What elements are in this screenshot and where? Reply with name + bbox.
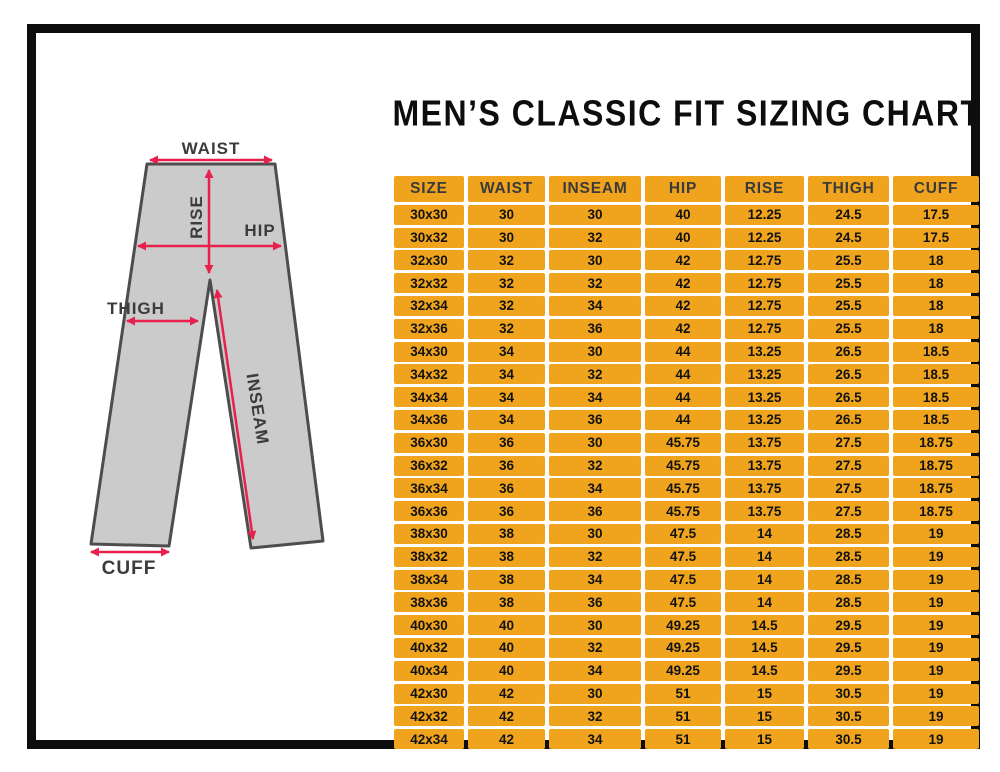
cell-waist: 36 [468,501,545,521]
cell-hip: 45.75 [645,456,721,476]
cell-size: 38x34 [394,570,464,590]
cell-rise: 13.75 [725,433,804,453]
waist-label: WAIST [182,139,241,158]
cell-size: 42x32 [394,706,464,726]
cell-size: 32x36 [394,319,464,339]
cell-size: 40x30 [394,615,464,635]
cell-rise: 15 [725,684,804,704]
cell-hip: 51 [645,729,721,749]
cell-cuff: 18.75 [893,478,979,498]
cell-cuff: 18 [893,250,979,270]
column-header-hip: HIP [645,176,721,202]
cell-rise: 12.75 [725,319,804,339]
cell-waist: 38 [468,547,545,567]
cell-hip: 44 [645,364,721,384]
cell-rise: 13.75 [725,501,804,521]
cell-thigh: 26.5 [808,342,889,362]
cell-thigh: 25.5 [808,273,889,293]
table-row: 34x30 34 30 44 13.25 26.5 18.5 [394,342,984,362]
pants-measurement-diagram: WAIST RISE HIP THIGH INSEAM CUFF [74,118,384,598]
cell-waist: 38 [468,524,545,544]
cell-rise: 12.75 [725,250,804,270]
cell-hip: 51 [645,684,721,704]
table-row: 38x34 38 34 47.5 14 28.5 19 [394,570,984,590]
cell-size: 38x32 [394,547,464,567]
cell-inseam: 36 [549,410,641,430]
cell-waist: 32 [468,273,545,293]
cell-hip: 42 [645,296,721,316]
cell-cuff: 19 [893,684,979,704]
column-header-size: SIZE [394,176,464,202]
cell-cuff: 19 [893,524,979,544]
cell-inseam: 34 [549,570,641,590]
cell-hip: 40 [645,228,721,248]
cell-waist: 34 [468,364,545,384]
poster-border-frame: MEN’S CLASSIC FIT SIZING CHART WAIST RIS… [27,24,980,749]
cell-thigh: 29.5 [808,615,889,635]
cell-hip: 42 [645,250,721,270]
cell-inseam: 34 [549,729,641,749]
cell-rise: 14 [725,570,804,590]
cell-thigh: 26.5 [808,364,889,384]
table-row: 38x32 38 32 47.5 14 28.5 19 [394,547,984,567]
cell-waist: 34 [468,342,545,362]
cell-waist: 36 [468,433,545,453]
cell-rise: 12.75 [725,296,804,316]
cell-hip: 44 [645,387,721,407]
cell-rise: 13.25 [725,364,804,384]
cell-size: 38x36 [394,592,464,612]
cell-thigh: 25.5 [808,296,889,316]
table-row: 34x32 34 32 44 13.25 26.5 18.5 [394,364,984,384]
cell-cuff: 18.75 [893,456,979,476]
cell-thigh: 27.5 [808,456,889,476]
cell-thigh: 24.5 [808,205,889,225]
cell-thigh: 30.5 [808,684,889,704]
cell-waist: 30 [468,205,545,225]
cell-rise: 15 [725,729,804,749]
table-row: 38x30 38 30 47.5 14 28.5 19 [394,524,984,544]
cell-cuff: 18 [893,273,979,293]
table-body: 30x30 30 30 40 12.25 24.5 17.5 30x32 30 … [394,205,984,752]
cell-waist: 42 [468,729,545,749]
cell-waist: 40 [468,638,545,658]
cell-thigh: 26.5 [808,387,889,407]
cell-inseam: 30 [549,205,641,225]
cell-cuff: 19 [893,592,979,612]
cell-size: 34x36 [394,410,464,430]
cell-cuff: 19 [893,729,979,749]
table-row: 32x32 32 32 42 12.75 25.5 18 [394,273,984,293]
cell-inseam: 32 [549,273,641,293]
cell-rise: 13.25 [725,387,804,407]
cell-hip: 45.75 [645,501,721,521]
cell-size: 34x30 [394,342,464,362]
table-row: 42x32 42 32 51 15 30.5 19 [394,706,984,726]
cell-inseam: 30 [549,342,641,362]
cell-size: 32x34 [394,296,464,316]
cell-cuff: 18.75 [893,433,979,453]
cell-inseam: 32 [549,456,641,476]
cell-cuff: 19 [893,706,979,726]
cell-size: 36x30 [394,433,464,453]
thigh-label: THIGH [107,299,165,318]
cell-rise: 13.75 [725,456,804,476]
pants-shape [91,164,323,548]
cell-cuff: 19 [893,638,979,658]
cell-thigh: 30.5 [808,706,889,726]
cell-rise: 12.75 [725,273,804,293]
cell-waist: 36 [468,478,545,498]
table-row: 36x30 36 30 45.75 13.75 27.5 18.75 [394,433,984,453]
cell-inseam: 36 [549,501,641,521]
cell-rise: 12.25 [725,228,804,248]
cell-thigh: 27.5 [808,501,889,521]
cell-cuff: 19 [893,661,979,681]
cell-waist: 34 [468,387,545,407]
cell-waist: 38 [468,570,545,590]
cell-thigh: 27.5 [808,478,889,498]
table-row: 32x34 32 34 42 12.75 25.5 18 [394,296,984,316]
cell-size: 34x32 [394,364,464,384]
cell-thigh: 25.5 [808,250,889,270]
cell-rise: 15 [725,706,804,726]
table-row: 42x34 42 34 51 15 30.5 19 [394,729,984,749]
cell-inseam: 30 [549,615,641,635]
cuff-label: CUFF [102,558,157,579]
cell-inseam: 34 [549,387,641,407]
cell-cuff: 17.5 [893,205,979,225]
cell-size: 30x30 [394,205,464,225]
cell-rise: 12.25 [725,205,804,225]
cell-cuff: 19 [893,570,979,590]
cell-hip: 42 [645,273,721,293]
cell-rise: 13.25 [725,410,804,430]
cell-thigh: 30.5 [808,729,889,749]
cell-size: 38x30 [394,524,464,544]
cell-thigh: 29.5 [808,661,889,681]
cell-cuff: 18.5 [893,342,979,362]
cell-inseam: 30 [549,433,641,453]
table-row: 42x30 42 30 51 15 30.5 19 [394,684,984,704]
table-row: 40x30 40 30 49.25 14.5 29.5 19 [394,615,984,635]
hip-label: HIP [244,221,275,240]
cell-hip: 47.5 [645,547,721,567]
table-row: 40x32 40 32 49.25 14.5 29.5 19 [394,638,984,658]
cell-size: 36x34 [394,478,464,498]
cell-waist: 30 [468,228,545,248]
cell-thigh: 24.5 [808,228,889,248]
cell-waist: 40 [468,615,545,635]
cell-waist: 32 [468,250,545,270]
cell-rise: 13.75 [725,478,804,498]
cell-cuff: 17.5 [893,228,979,248]
table-row: 38x36 38 36 47.5 14 28.5 19 [394,592,984,612]
cell-thigh: 29.5 [808,638,889,658]
cell-rise: 14.5 [725,661,804,681]
table-row: 30x32 30 32 40 12.25 24.5 17.5 [394,228,984,248]
cell-waist: 32 [468,296,545,316]
cell-hip: 45.75 [645,478,721,498]
column-header-thigh: THIGH [808,176,889,202]
cell-hip: 47.5 [645,570,721,590]
cell-size: 42x30 [394,684,464,704]
table-row: 34x36 34 36 44 13.25 26.5 18.5 [394,410,984,430]
cell-thigh: 27.5 [808,433,889,453]
cell-thigh: 28.5 [808,592,889,612]
cell-waist: 42 [468,706,545,726]
column-header-rise: RISE [725,176,804,202]
cell-rise: 14.5 [725,638,804,658]
cell-size: 30x32 [394,228,464,248]
cell-cuff: 18 [893,296,979,316]
cell-hip: 42 [645,319,721,339]
cell-waist: 42 [468,684,545,704]
sizing-chart-poster: MEN’S CLASSIC FIT SIZING CHART WAIST RIS… [0,0,1000,772]
cell-inseam: 32 [549,364,641,384]
cell-inseam: 30 [549,250,641,270]
table-row: 36x36 36 36 45.75 13.75 27.5 18.75 [394,501,984,521]
cell-hip: 47.5 [645,524,721,544]
cell-inseam: 34 [549,661,641,681]
cell-inseam: 34 [549,478,641,498]
table-row: 36x32 36 32 45.75 13.75 27.5 18.75 [394,456,984,476]
cell-hip: 49.25 [645,615,721,635]
cell-rise: 14 [725,592,804,612]
cell-inseam: 36 [549,592,641,612]
cell-inseam: 32 [549,638,641,658]
cell-size: 40x32 [394,638,464,658]
cell-hip: 49.25 [645,638,721,658]
table-row: 30x30 30 30 40 12.25 24.5 17.5 [394,205,984,225]
cell-hip: 44 [645,410,721,430]
cell-hip: 49.25 [645,661,721,681]
cell-size: 42x34 [394,729,464,749]
cell-size: 36x32 [394,456,464,476]
column-header-cuff: CUFF [893,176,979,202]
table-row: 36x34 36 34 45.75 13.75 27.5 18.75 [394,478,984,498]
table-row: 32x30 32 30 42 12.75 25.5 18 [394,250,984,270]
cell-cuff: 19 [893,615,979,635]
cell-rise: 14 [725,547,804,567]
cell-inseam: 36 [549,319,641,339]
table-row: 34x34 34 34 44 13.25 26.5 18.5 [394,387,984,407]
cell-cuff: 18.5 [893,410,979,430]
cell-rise: 13.25 [725,342,804,362]
cell-inseam: 34 [549,296,641,316]
cell-thigh: 28.5 [808,524,889,544]
rise-label: RISE [187,195,206,239]
cell-inseam: 30 [549,524,641,544]
cell-size: 36x36 [394,501,464,521]
cell-waist: 32 [468,319,545,339]
table-row: 32x36 32 36 42 12.75 25.5 18 [394,319,984,339]
cell-cuff: 19 [893,547,979,567]
column-header-waist: WAIST [468,176,545,202]
cell-hip: 47.5 [645,592,721,612]
cell-size: 40x34 [394,661,464,681]
column-header-inseam: INSEAM [549,176,641,202]
cell-inseam: 32 [549,228,641,248]
cell-size: 32x30 [394,250,464,270]
cell-size: 34x34 [394,387,464,407]
cell-thigh: 28.5 [808,570,889,590]
cell-hip: 45.75 [645,433,721,453]
cell-cuff: 18.5 [893,387,979,407]
cell-size: 32x32 [394,273,464,293]
cell-cuff: 18.5 [893,364,979,384]
cell-waist: 36 [468,456,545,476]
cell-waist: 38 [468,592,545,612]
cell-rise: 14.5 [725,615,804,635]
cell-inseam: 32 [549,706,641,726]
cell-hip: 51 [645,706,721,726]
page-title: MEN’S CLASSIC FIT SIZING CHART [388,93,986,134]
cell-thigh: 25.5 [808,319,889,339]
cell-hip: 44 [645,342,721,362]
cell-cuff: 18.75 [893,501,979,521]
cell-waist: 34 [468,410,545,430]
cell-rise: 14 [725,524,804,544]
table-header-row: SIZE WAIST INSEAM HIP RISE THIGH CUFF [394,176,984,202]
sizing-table: SIZE WAIST INSEAM HIP RISE THIGH CUFF 30… [394,176,984,752]
cell-inseam: 32 [549,547,641,567]
cell-inseam: 30 [549,684,641,704]
table-row: 40x34 40 34 49.25 14.5 29.5 19 [394,661,984,681]
cell-thigh: 26.5 [808,410,889,430]
cell-thigh: 28.5 [808,547,889,567]
cell-waist: 40 [468,661,545,681]
cell-cuff: 18 [893,319,979,339]
cell-hip: 40 [645,205,721,225]
